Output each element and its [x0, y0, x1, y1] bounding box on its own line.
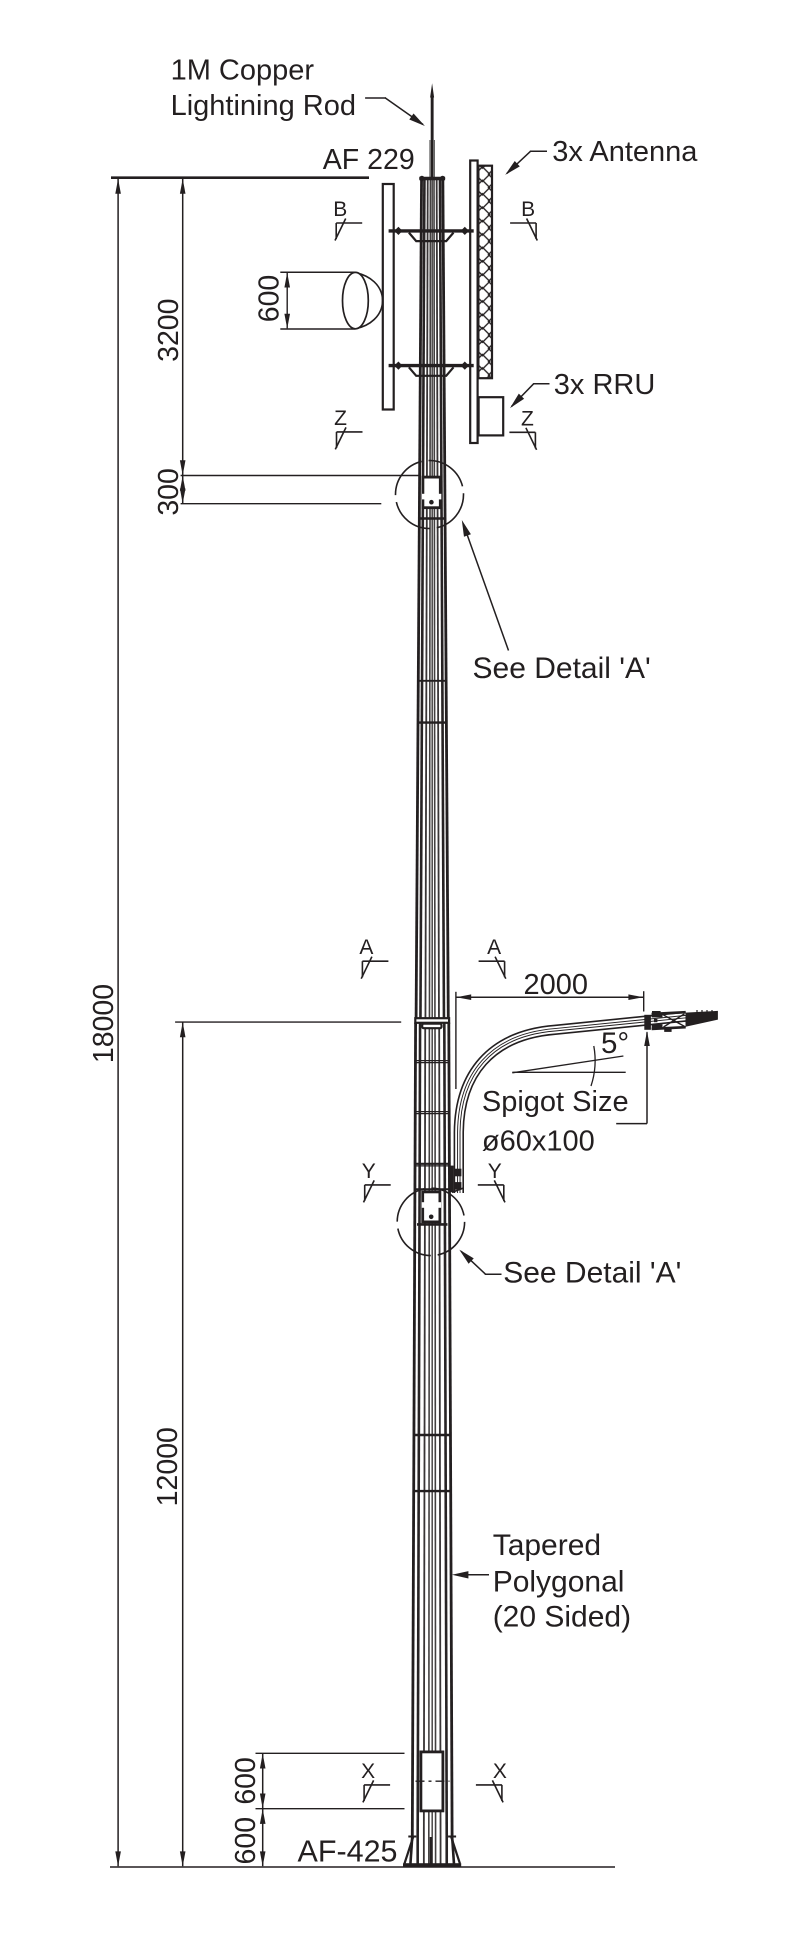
svg-text:See Detail 'A': See Detail 'A'	[503, 1257, 681, 1290]
svg-text:Spigot Size: Spigot Size	[482, 1086, 629, 1118]
svg-text:A: A	[487, 936, 501, 959]
svg-text:ø60x100: ø60x100	[482, 1126, 595, 1158]
svg-text:3x Antenna: 3x Antenna	[552, 136, 698, 168]
svg-text:Z: Z	[334, 407, 347, 430]
svg-text:1M Copper: 1M Copper	[171, 54, 315, 86]
svg-text:5°: 5°	[601, 1027, 629, 1060]
svg-text:600: 600	[230, 1757, 262, 1805]
svg-text:3x RRU: 3x RRU	[554, 369, 656, 401]
svg-text:X: X	[361, 1760, 375, 1783]
svg-text:300: 300	[153, 468, 185, 516]
svg-text:B: B	[521, 198, 535, 221]
svg-text:Y: Y	[362, 1160, 376, 1183]
svg-text:AF 229: AF 229	[323, 144, 415, 176]
svg-text:Y: Y	[488, 1160, 502, 1183]
svg-text:Z: Z	[521, 407, 534, 430]
svg-text:600: 600	[253, 275, 285, 323]
svg-text:Tapered: Tapered	[493, 1529, 601, 1562]
svg-text:A: A	[359, 936, 373, 959]
svg-text:AF-425: AF-425	[298, 1835, 398, 1869]
svg-text:600: 600	[230, 1817, 262, 1865]
svg-text:18000: 18000	[88, 984, 120, 1063]
svg-text:See Detail 'A': See Detail 'A'	[473, 652, 651, 685]
svg-text:2000: 2000	[523, 969, 588, 1001]
svg-text:12000: 12000	[152, 1427, 184, 1506]
svg-text:Polygonal: Polygonal	[493, 1566, 625, 1599]
svg-text:(20 Sided): (20 Sided)	[493, 1601, 631, 1634]
svg-text:3200: 3200	[153, 298, 185, 361]
svg-text:B: B	[333, 198, 347, 221]
svg-text:Lightining Rod: Lightining Rod	[171, 90, 356, 122]
svg-text:X: X	[493, 1760, 507, 1783]
